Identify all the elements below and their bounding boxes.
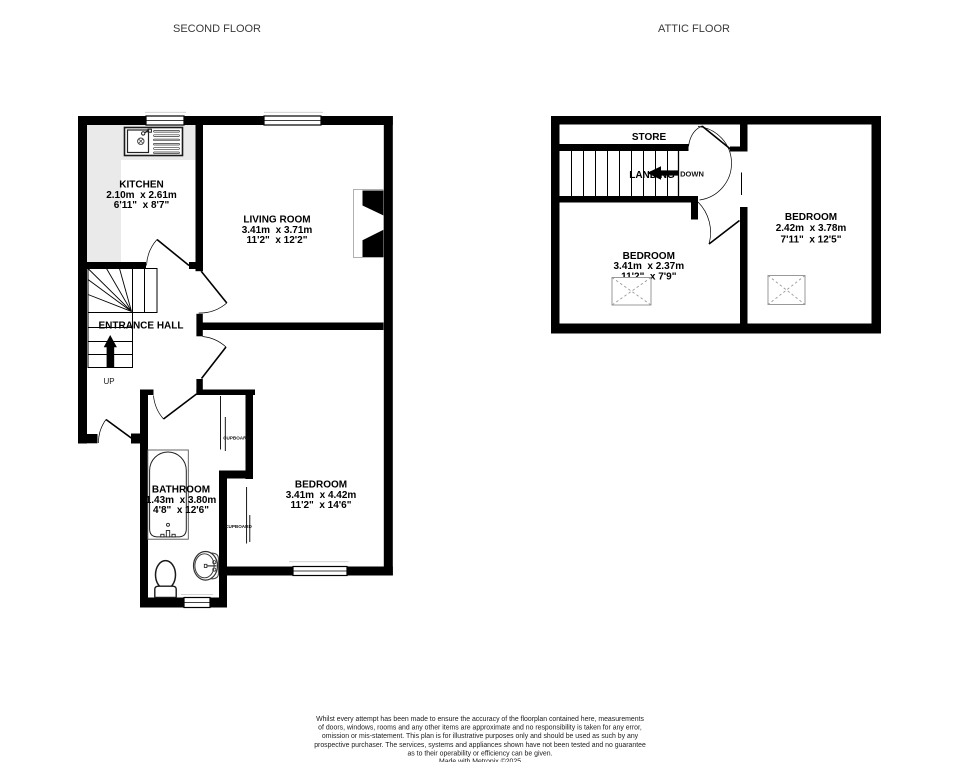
svg-text:ENTRANCE HALL: ENTRANCE HALL (99, 320, 184, 331)
svg-text:Whilst every attempt has been: Whilst every attempt has been made to en… (316, 716, 644, 723)
svg-text:prospective purchaser. The ser: prospective purchaser. The services, sys… (314, 742, 646, 749)
svg-text:omission or mis-statement. Thi: omission or mis-statement. This plan is … (322, 733, 639, 740)
svg-text:11'2" x 14'6": 11'2" x 14'6" (291, 500, 352, 511)
svg-text:SECOND FLOOR: SECOND FLOOR (173, 23, 261, 35)
svg-text:CUPBOARD: CUPBOARD (225, 524, 252, 529)
svg-text:6'11" x 8'7": 6'11" x 8'7" (114, 200, 170, 211)
svg-text:Made with Metropix ©2025: Made with Metropix ©2025 (439, 757, 521, 762)
svg-text:of doors, windows, rooms and a: of doors, windows, rooms and any other i… (318, 725, 642, 732)
svg-text:CUPBOARD: CUPBOARD (223, 436, 250, 441)
svg-text:ATTIC FLOOR: ATTIC FLOOR (658, 23, 730, 35)
svg-text:4'8" x 12'6": 4'8" x 12'6" (153, 505, 209, 516)
svg-text:STORE: STORE (632, 132, 667, 143)
svg-text:DOWN: DOWN (680, 170, 704, 179)
svg-text:7'11" x 12'5": 7'11" x 12'5" (781, 234, 842, 245)
svg-text:as to their operability or eff: as to their operability or efficiency ca… (407, 750, 552, 757)
svg-text:2.42m x 3.78m: 2.42m x 3.78m (776, 223, 847, 234)
svg-text:BEDROOM: BEDROOM (785, 212, 837, 223)
svg-text:UP: UP (103, 377, 114, 386)
svg-text:11'2" x 12'2": 11'2" x 12'2" (247, 235, 308, 246)
